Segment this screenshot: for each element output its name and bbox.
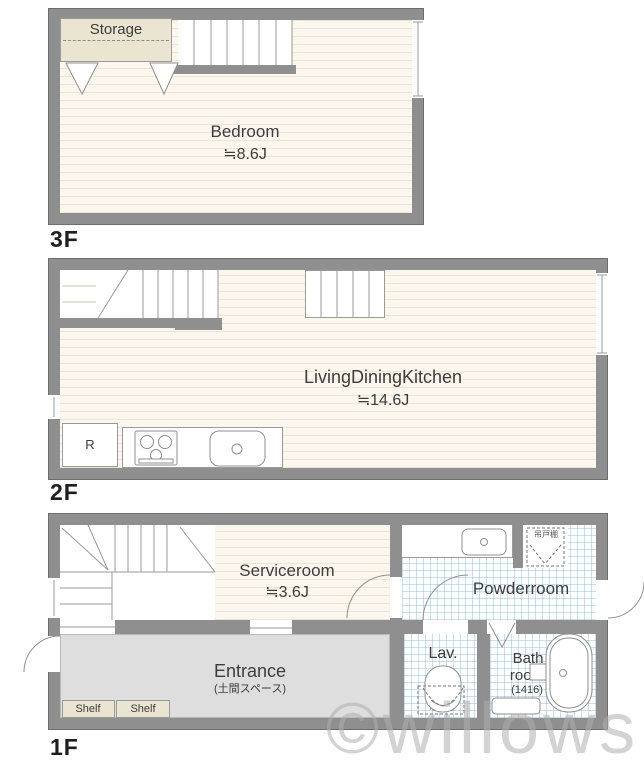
refrigerator-label: R xyxy=(85,438,94,452)
entrance-label: Entrance xyxy=(214,662,286,682)
shelf-1-label: Shelf xyxy=(75,703,100,715)
powder-stub-wall xyxy=(513,525,523,568)
doorway-bath xyxy=(487,620,516,634)
floor-plan-page: Storage Bedroom ≒8.6J 3F R LivingDiningK… xyxy=(0,0,644,768)
bedroom-label: Bedroom xyxy=(211,123,280,142)
door-powder-exterior xyxy=(596,580,608,620)
stairs-2f-down xyxy=(60,270,218,318)
stairs-1f xyxy=(60,525,215,620)
bath-label-1: Bath xyxy=(513,651,544,668)
cupboard-powder-label: 吊戸棚 xyxy=(534,531,558,540)
entrance-note-label: (土間スペース) xyxy=(214,683,286,695)
kitchen-counter xyxy=(122,427,283,468)
bedroom-size-label: ≒8.6J xyxy=(223,146,267,164)
gap-stairs-entrance xyxy=(60,620,115,634)
vanity-counter xyxy=(402,525,513,558)
powderroom-label: Powderroom xyxy=(473,580,569,599)
bath-label-2: room xyxy=(510,668,544,685)
ldk-label: LivingDiningKitchen xyxy=(304,368,462,388)
stairs-3f xyxy=(178,20,292,65)
ldk-size-label: ≒14.6J xyxy=(357,392,410,410)
floor-tag-3f: 3F xyxy=(50,226,79,253)
doorway-serviceroom xyxy=(390,577,402,618)
window-3f-right xyxy=(412,20,424,98)
stair-wall-3f xyxy=(168,65,296,74)
doorway-lav xyxy=(423,620,468,634)
storage-label: Storage xyxy=(90,22,143,39)
opening-entrance-step xyxy=(250,620,292,634)
window-2f-left xyxy=(48,395,60,419)
storage-dashed-line xyxy=(63,40,169,41)
door-entrance-front xyxy=(48,636,60,672)
shelf-2-label: Shelf xyxy=(130,703,155,715)
stair-wall-2f-notch xyxy=(175,318,222,330)
lav-label: Lav. xyxy=(428,645,457,663)
floor-tag-2f: 2F xyxy=(50,479,79,506)
stairs-2f-up xyxy=(305,270,385,318)
window-2f-right xyxy=(596,273,608,355)
floor-tag-1f: 1F xyxy=(50,734,79,761)
serviceroom-label: Serviceroom xyxy=(239,562,334,581)
window-1f-left xyxy=(48,578,60,618)
watermark: ©willows xyxy=(326,688,639,768)
serviceroom-size-label: ≒3.6J xyxy=(265,584,309,602)
